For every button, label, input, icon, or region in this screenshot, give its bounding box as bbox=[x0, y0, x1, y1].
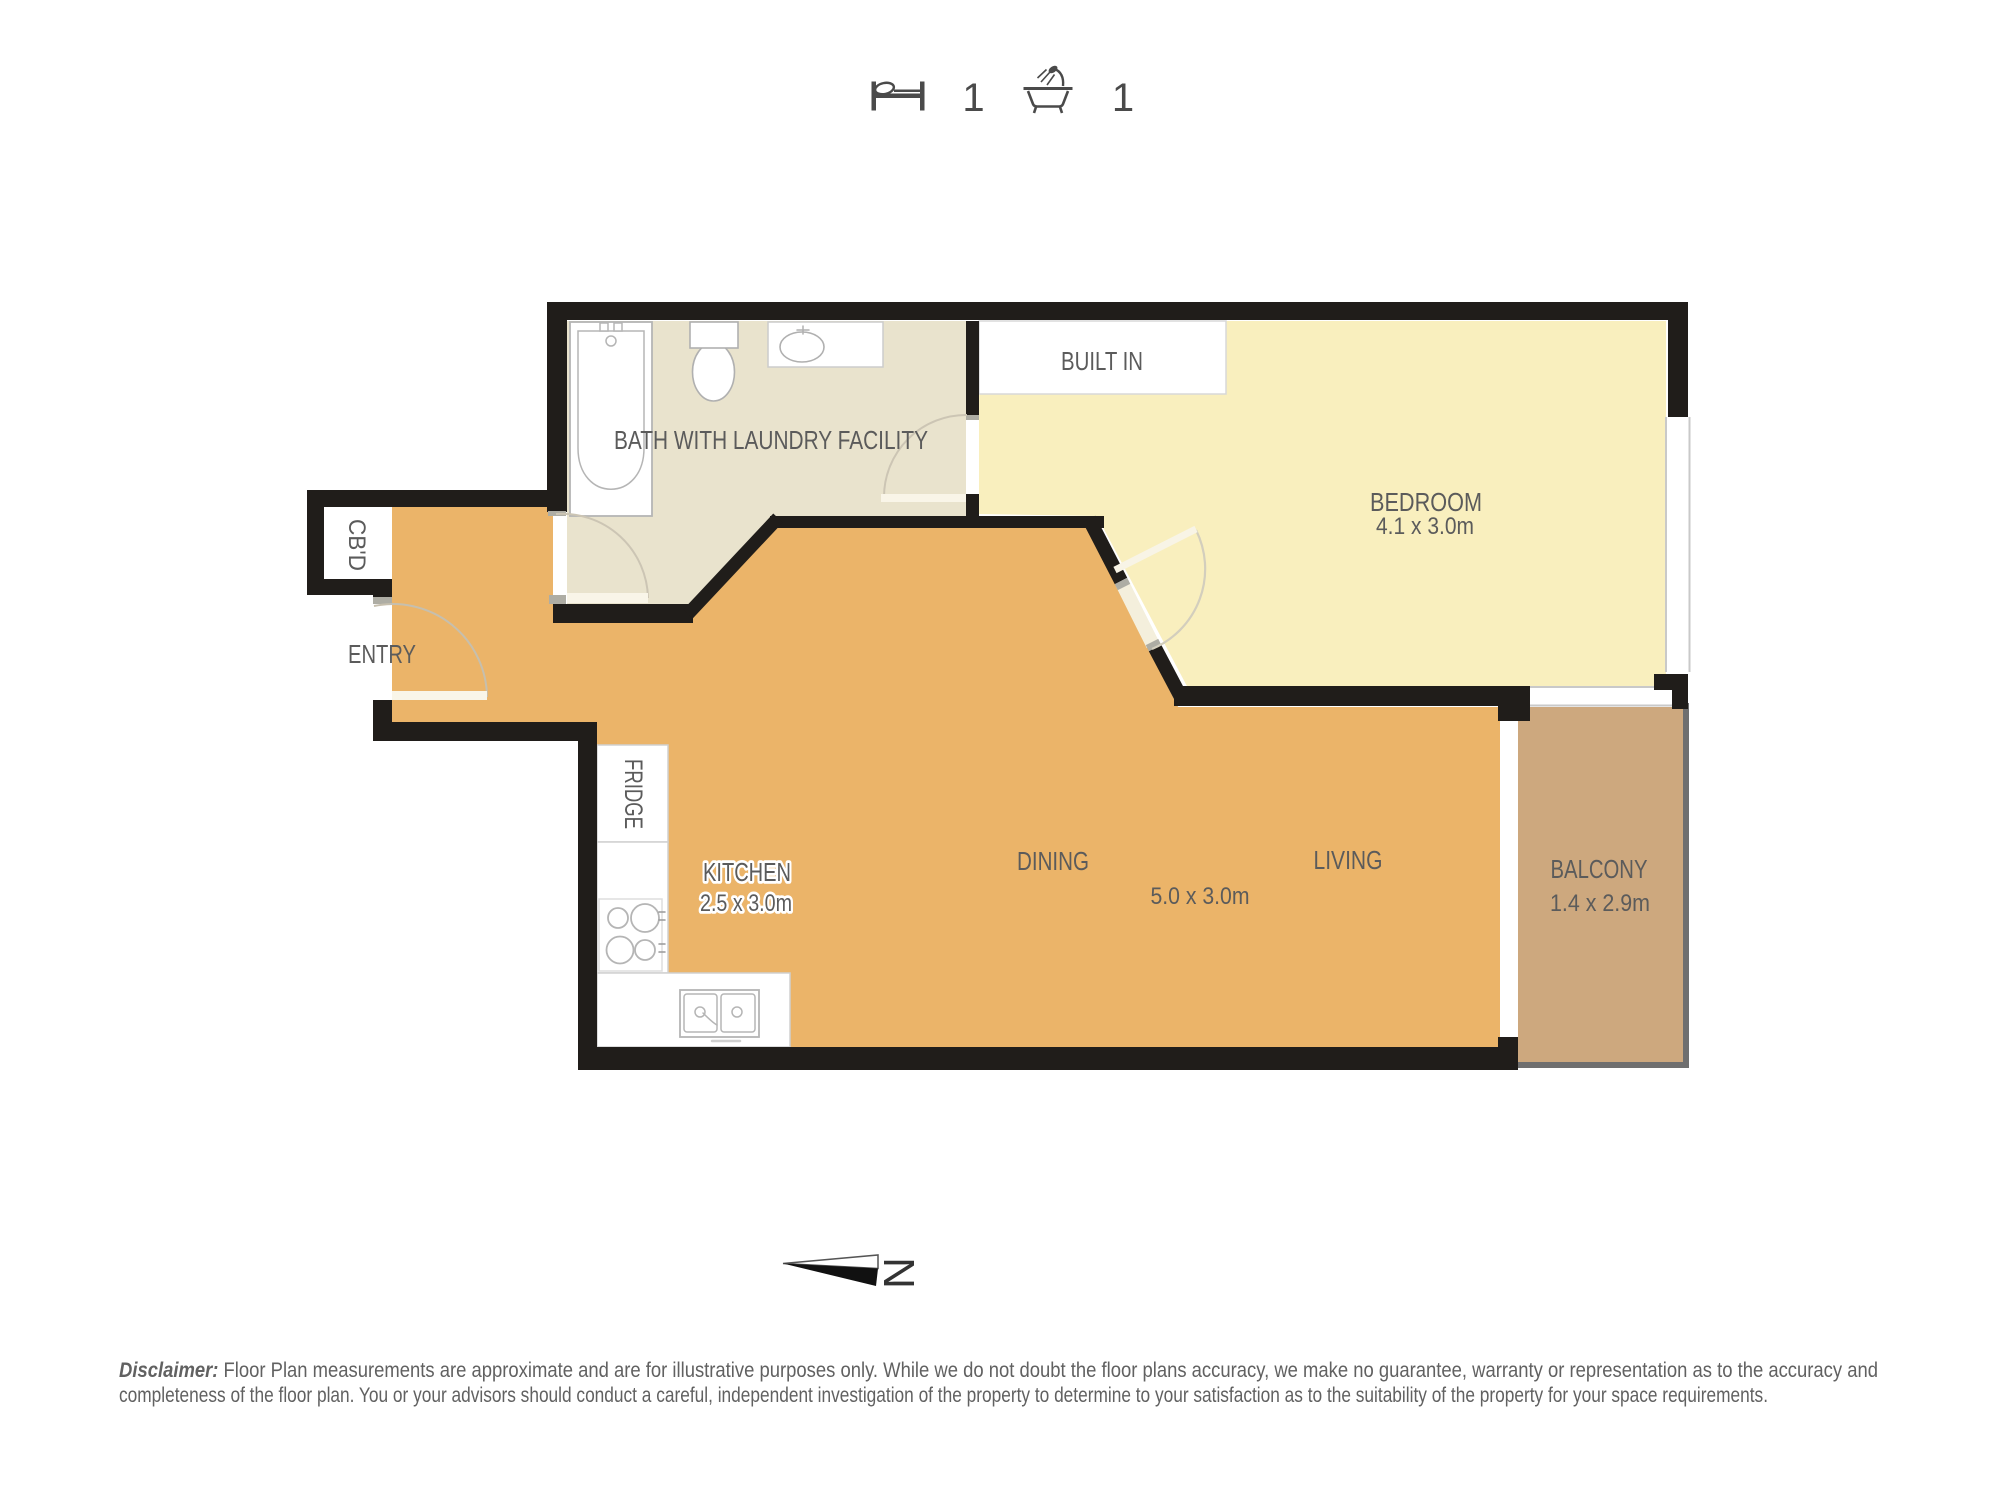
svg-text:BALCONY: BALCONY bbox=[1551, 854, 1648, 884]
svg-text:DINING: DINING bbox=[1017, 846, 1089, 876]
svg-text:ENTRY: ENTRY bbox=[348, 639, 416, 669]
svg-text:FRIDGE: FRIDGE bbox=[619, 759, 647, 829]
svg-text:LIVING: LIVING bbox=[1314, 845, 1383, 875]
svg-text:completeness of the floor plan: completeness of the floor plan. You or y… bbox=[119, 1384, 1768, 1407]
svg-text:KITCHEN: KITCHEN bbox=[703, 857, 791, 887]
svg-text:N: N bbox=[874, 1257, 923, 1289]
svg-text:CB'D: CB'D bbox=[343, 519, 370, 571]
svg-text:4.1 x 3.0m: 4.1 x 3.0m bbox=[1376, 513, 1474, 540]
svg-text:5.0 x 3.0m: 5.0 x 3.0m bbox=[1151, 883, 1250, 910]
svg-text:BATH WITH LAUNDRY FACILITY: BATH WITH LAUNDRY FACILITY bbox=[614, 425, 928, 455]
svg-text:BUILT IN: BUILT IN bbox=[1061, 346, 1143, 376]
svg-text:1: 1 bbox=[962, 76, 984, 120]
svg-text:1: 1 bbox=[1112, 76, 1134, 120]
svg-text:2.5 x 3.0m: 2.5 x 3.0m bbox=[700, 890, 792, 917]
svg-text:Disclaimer: Floor Plan measure: Disclaimer: Floor Plan measurements are … bbox=[119, 1359, 1878, 1382]
svg-text:1.4 x 2.9m: 1.4 x 2.9m bbox=[1550, 890, 1650, 917]
